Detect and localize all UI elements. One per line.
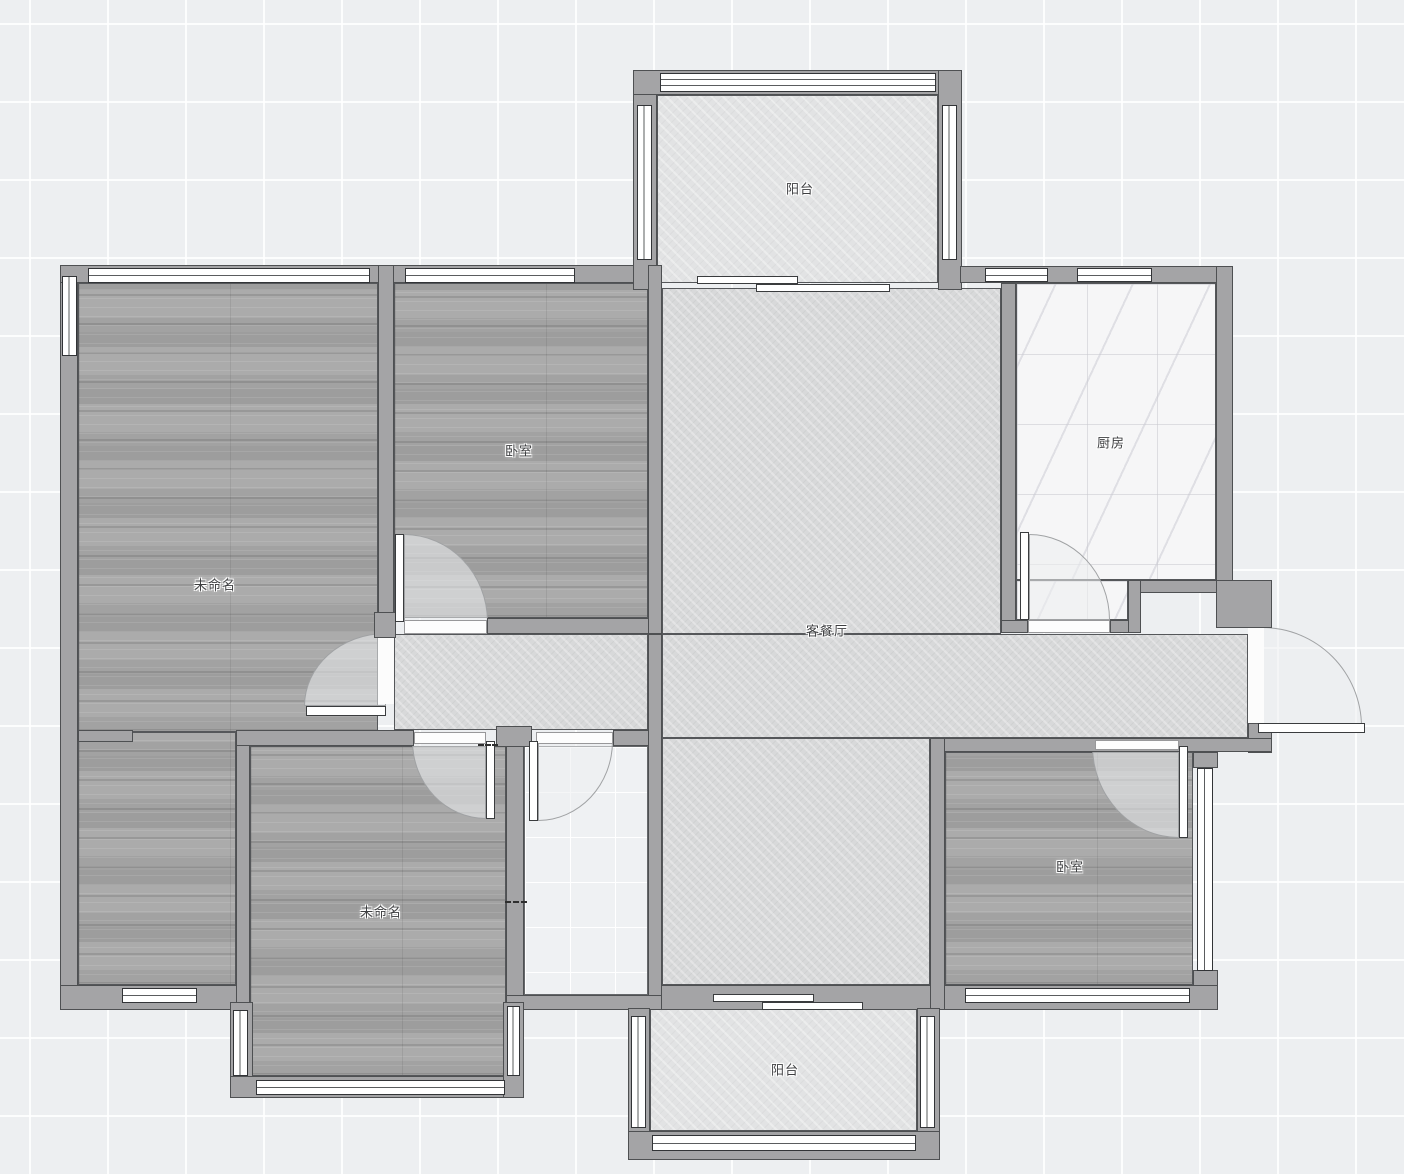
door-leaf-unnamed-bottom[interactable]	[486, 741, 495, 819]
door-leaf-unnamed-left[interactable]	[306, 706, 386, 716]
door-leaf-bedroom-right[interactable]	[1179, 746, 1188, 838]
door-leaf-kitchen[interactable]	[1020, 532, 1029, 620]
wall-kitchen-left[interactable]	[1001, 283, 1016, 633]
window-bedroom-right[interactable]	[1197, 768, 1213, 971]
door-opening	[536, 732, 613, 744]
door-opening	[378, 638, 394, 704]
room-floor-living-body[interactable]	[662, 738, 930, 985]
window[interactable]	[637, 105, 652, 260]
window[interactable]	[62, 276, 77, 356]
window-kitchen-2[interactable]	[1077, 268, 1152, 282]
door-leaf-bathroom[interactable]	[529, 741, 538, 821]
wall-pier-doors[interactable]	[496, 726, 532, 747]
door-opening	[1095, 740, 1179, 750]
wall-bedroom-top-left[interactable]	[378, 265, 394, 622]
door-opening-entry	[1248, 628, 1264, 723]
wall-kitchen-jamb-left[interactable]	[1001, 620, 1028, 633]
window-balcony-bottom-right[interactable]	[920, 1016, 935, 1128]
window-bay-bottom[interactable]	[256, 1080, 505, 1095]
wall-entry-block-top[interactable]	[1216, 580, 1272, 628]
door-opening	[1028, 620, 1110, 633]
wall-bathroom-left[interactable]	[506, 746, 524, 1010]
wall-kitchen-step[interactable]	[1128, 580, 1141, 633]
window-kitchen-1[interactable]	[985, 268, 1048, 282]
room-label-living-dining: 客餐厅	[806, 621, 848, 640]
window[interactable]	[942, 105, 957, 260]
door-leaf-entry[interactable]	[1258, 723, 1365, 733]
window[interactable]	[405, 268, 575, 283]
dimension-mark	[505, 901, 527, 903]
room-label-unnamed-left: 未命名	[194, 575, 236, 594]
window-balcony-bottom-left[interactable]	[631, 1016, 646, 1128]
wall-bedroom-top-bottom[interactable]	[487, 618, 662, 634]
sliding-door-panel[interactable]	[762, 1002, 863, 1010]
window-bay-left[interactable]	[233, 1010, 248, 1076]
wall-exterior-right-upper[interactable]	[1216, 266, 1233, 593]
room-label-unnamed-bottom: 未命名	[360, 902, 402, 921]
window-bedroom-bottom[interactable]	[965, 988, 1190, 1003]
dimension-mark	[478, 744, 498, 746]
room-floor-living-top-arm[interactable]	[662, 288, 1001, 634]
room-floor-living-middle[interactable]	[662, 634, 1248, 738]
wall-bedroom-right-left[interactable]	[930, 738, 945, 1010]
room-label-bedroom-right: 卧室	[1056, 857, 1084, 876]
window[interactable]	[88, 268, 370, 283]
wall-exterior-left[interactable]	[60, 265, 78, 1010]
room-label-kitchen: 厨房	[1097, 433, 1125, 452]
wall-unnamed-bottom-top[interactable]	[236, 730, 414, 746]
window-unnamed-left-bottom[interactable]	[122, 988, 197, 1003]
wall-bathroom-right[interactable]	[648, 634, 662, 1010]
door-opening	[404, 620, 487, 634]
door-leaf-bedroom-top[interactable]	[395, 534, 404, 622]
sliding-door-panel[interactable]	[697, 276, 798, 284]
room-label-balcony-bottom: 阳台	[771, 1060, 799, 1079]
room-label-bedroom-top: 卧室	[505, 441, 533, 460]
sliding-door-panel[interactable]	[756, 284, 890, 292]
floorplan-canvas[interactable]: 阳台 卧室 未命名 厨房 客餐厅 未命名 卧室 阳台	[0, 0, 1404, 1174]
window-bay-right[interactable]	[507, 1006, 520, 1076]
wall-unnamed-bottom-left[interactable]	[236, 730, 250, 1010]
wall-unnamed-left-stub[interactable]	[78, 730, 133, 742]
wall-bedroom-top-right[interactable]	[648, 265, 662, 634]
room-floor-unnamed-left-lower[interactable]	[78, 732, 236, 985]
door-opening	[414, 732, 486, 744]
door-swing-arc-entry	[1262, 627, 1362, 727]
window-balcony-bottom[interactable]	[652, 1135, 916, 1151]
room-label-balcony-top: 阳台	[786, 179, 814, 198]
wall-pier-hall[interactable]	[374, 612, 396, 638]
window-balcony-top[interactable]	[660, 73, 936, 92]
sliding-door-panel[interactable]	[713, 994, 814, 1002]
wall-bedroom-right-side-upper[interactable]	[1193, 752, 1218, 768]
room-floor-living-hallway[interactable]	[394, 634, 648, 730]
